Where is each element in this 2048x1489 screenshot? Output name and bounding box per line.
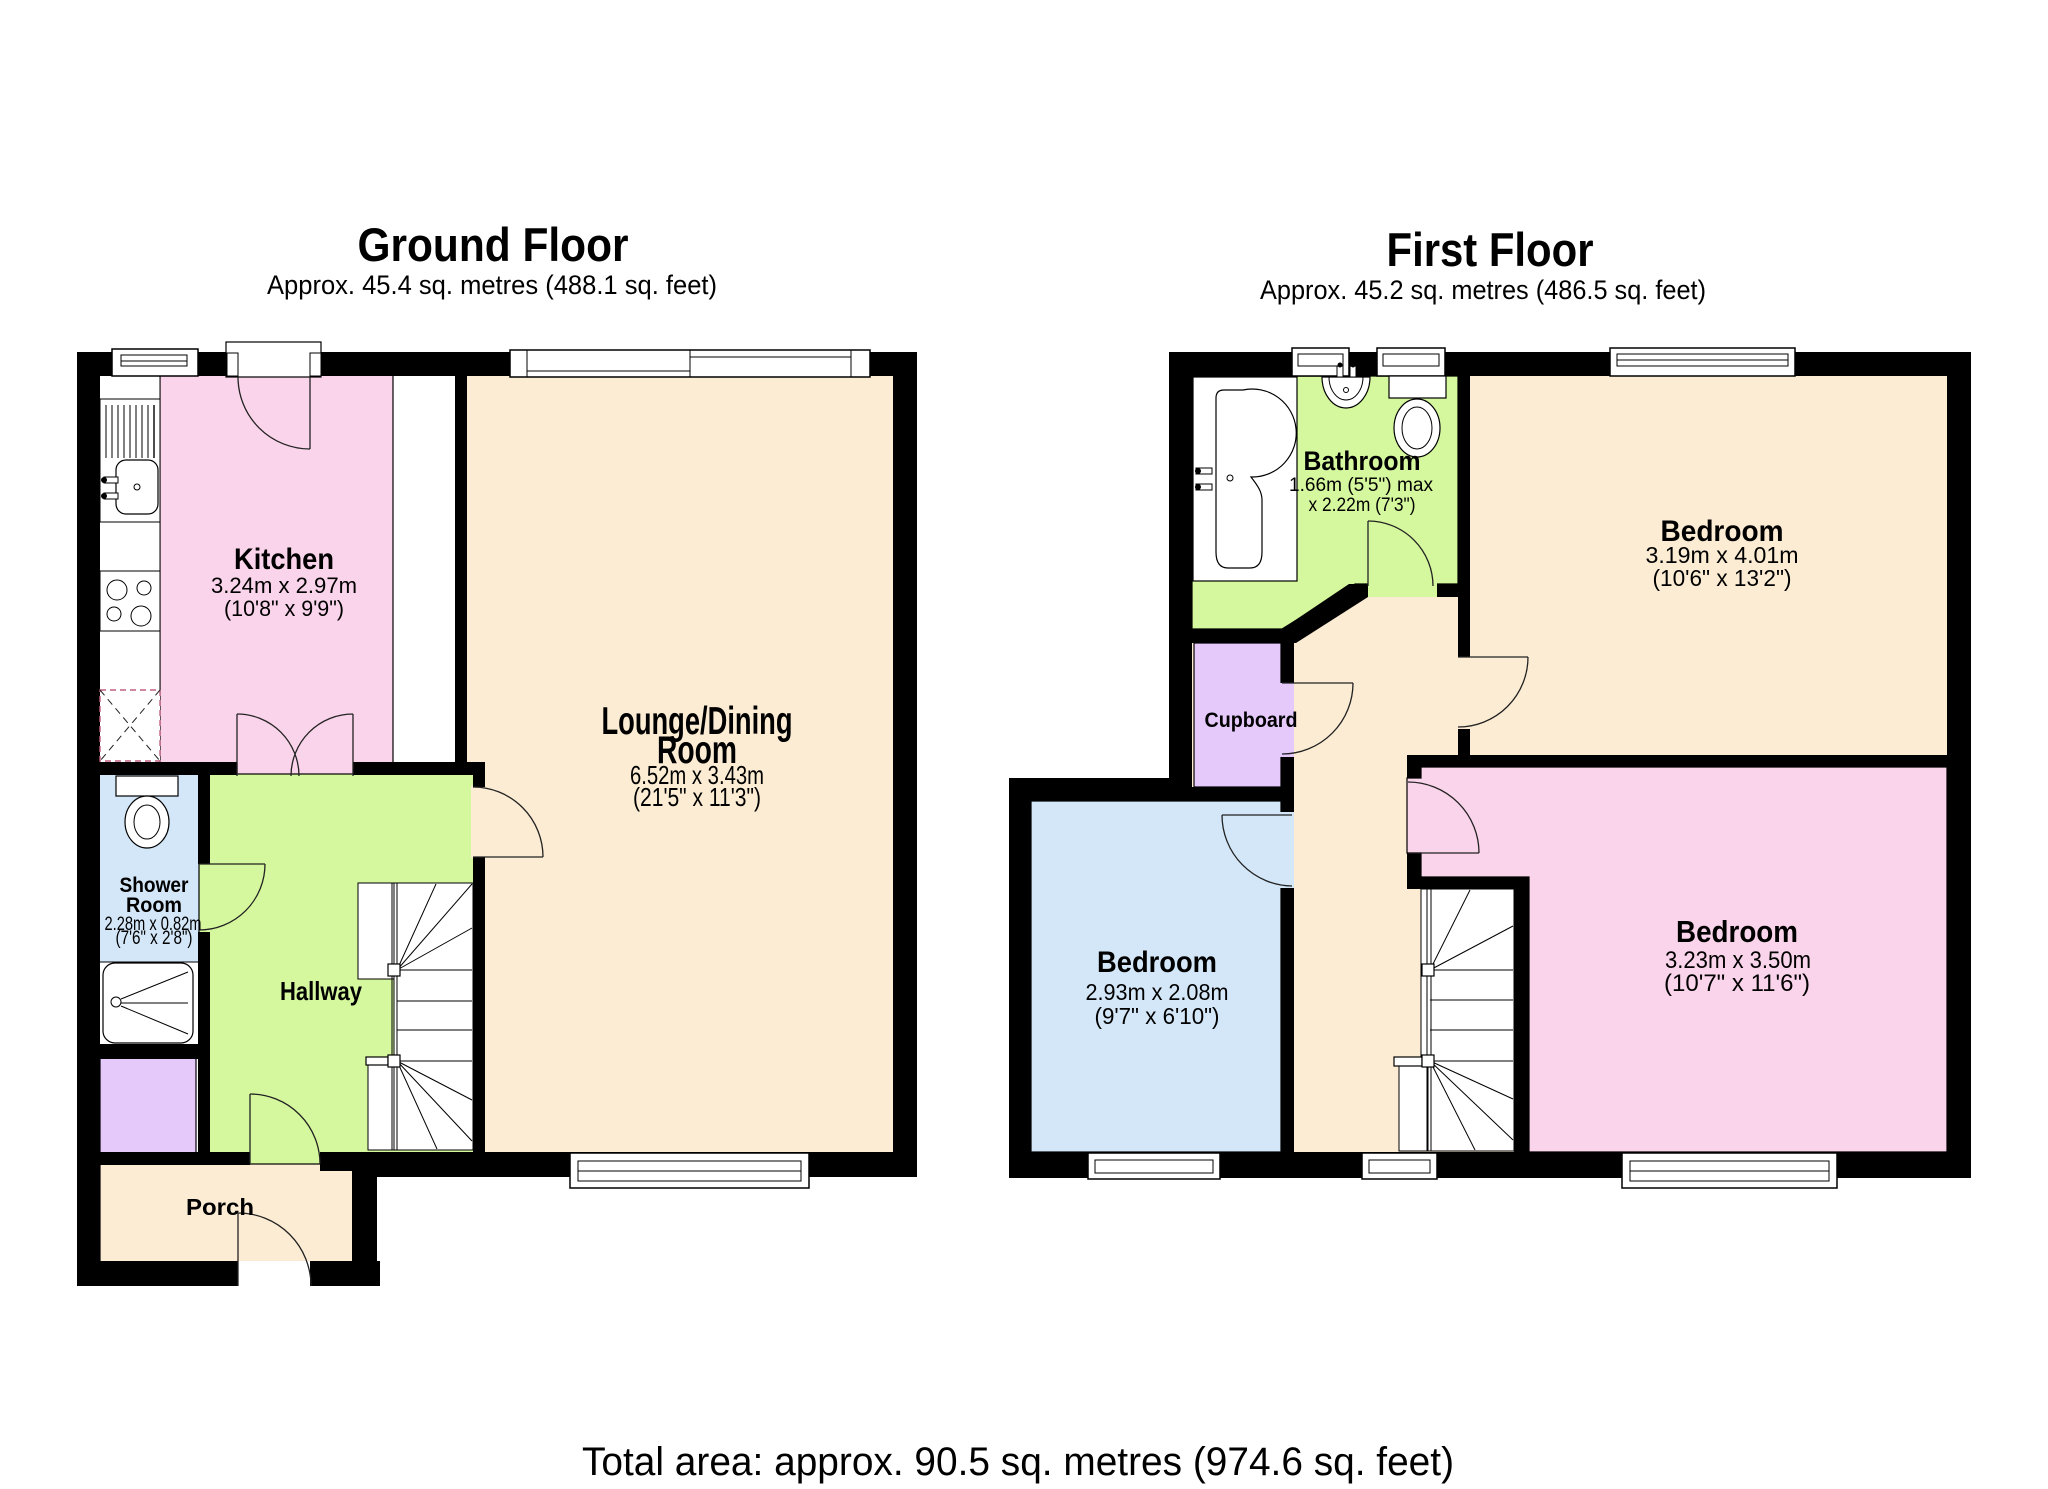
svg-text:(7'6" x 2'8"): (7'6" x 2'8") bbox=[116, 928, 193, 949]
svg-text:(10'8" x 9'9"): (10'8" x 9'9") bbox=[224, 596, 344, 621]
svg-text:(9'7" x 6'10"): (9'7" x 6'10") bbox=[1095, 1003, 1220, 1029]
svg-text:(10'7" x 11'6"): (10'7" x 11'6") bbox=[1664, 970, 1810, 997]
svg-text:Bedroom: Bedroom bbox=[1676, 914, 1798, 949]
svg-text:Kitchen: Kitchen bbox=[234, 543, 334, 576]
svg-text:Hallway: Hallway bbox=[280, 976, 362, 1006]
svg-text:(21'5" x 11'3"): (21'5" x 11'3") bbox=[633, 782, 761, 812]
svg-text:3.24m x 2.97m: 3.24m x 2.97m bbox=[211, 573, 357, 598]
svg-text:Ground Floor: Ground Floor bbox=[358, 218, 629, 271]
svg-text:Total area: approx. 90.5 sq. m: Total area: approx. 90.5 sq. metres (974… bbox=[582, 1440, 1454, 1484]
svg-text:Approx. 45.2 sq. metres (486.5: Approx. 45.2 sq. metres (486.5 sq. feet) bbox=[1260, 275, 1706, 305]
svg-text:x 2.22m (7'3"): x 2.22m (7'3") bbox=[1309, 495, 1416, 516]
svg-text:1.66m (5'5") max: 1.66m (5'5") max bbox=[1289, 475, 1433, 496]
svg-text:Porch: Porch bbox=[186, 1194, 254, 1220]
svg-text:Approx. 45.4 sq. metres (488.1: Approx. 45.4 sq. metres (488.1 sq. feet) bbox=[267, 270, 717, 300]
svg-text:First Floor: First Floor bbox=[1387, 223, 1594, 276]
svg-text:2.93m x 2.08m: 2.93m x 2.08m bbox=[1086, 979, 1229, 1005]
svg-text:(10'6" x 13'2"): (10'6" x 13'2") bbox=[1653, 565, 1792, 591]
svg-text:Bedroom: Bedroom bbox=[1097, 946, 1217, 979]
svg-text:Bathroom: Bathroom bbox=[1304, 446, 1421, 476]
svg-text:Cupboard: Cupboard bbox=[1205, 709, 1298, 732]
